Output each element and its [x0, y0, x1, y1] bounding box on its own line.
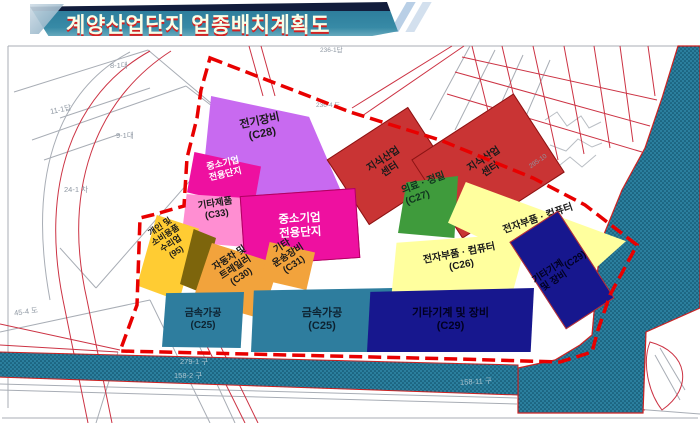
title-banner: 계양산업단지 업종배치계획도: [30, 2, 398, 36]
parcel-label: 9-1대: [116, 130, 134, 141]
zone-fill: [367, 288, 534, 352]
parcel-label: 279-1 구: [180, 356, 208, 367]
parcel-label: 158-11 구: [460, 375, 492, 388]
river-band: [0, 352, 518, 395]
parcel-label: 236-1답: [320, 44, 343, 54]
zone-other-transport-c31: 기타 운송장비(C31): [261, 242, 315, 290]
zone-fill: [162, 292, 244, 348]
parcel-label: 45-4 도: [13, 304, 38, 318]
zone-metal-processing-c25-west: 금속가공(C25): [162, 292, 244, 348]
zone-other-machinery-c29-south: 기타기계 및 장비(C29): [367, 288, 534, 352]
parcel-label: 8-1대: [110, 60, 128, 71]
zoning-map: 전기장비(C28) 지식산업 센터 지식산업 센터 중소기업 전용단지 기타제품…: [0, 0, 700, 423]
parcel-label: 24-1 차: [64, 184, 88, 195]
parcel-label: 11-1답: [49, 102, 72, 117]
page-title: 계양산업단지 업종배치계획도: [30, 2, 398, 39]
parcel-label: 158-2 구: [174, 370, 202, 381]
zone-fill: [261, 242, 315, 290]
zone-other-machinery-c29-east: 기타기계 및 장비(C29): [523, 222, 599, 318]
